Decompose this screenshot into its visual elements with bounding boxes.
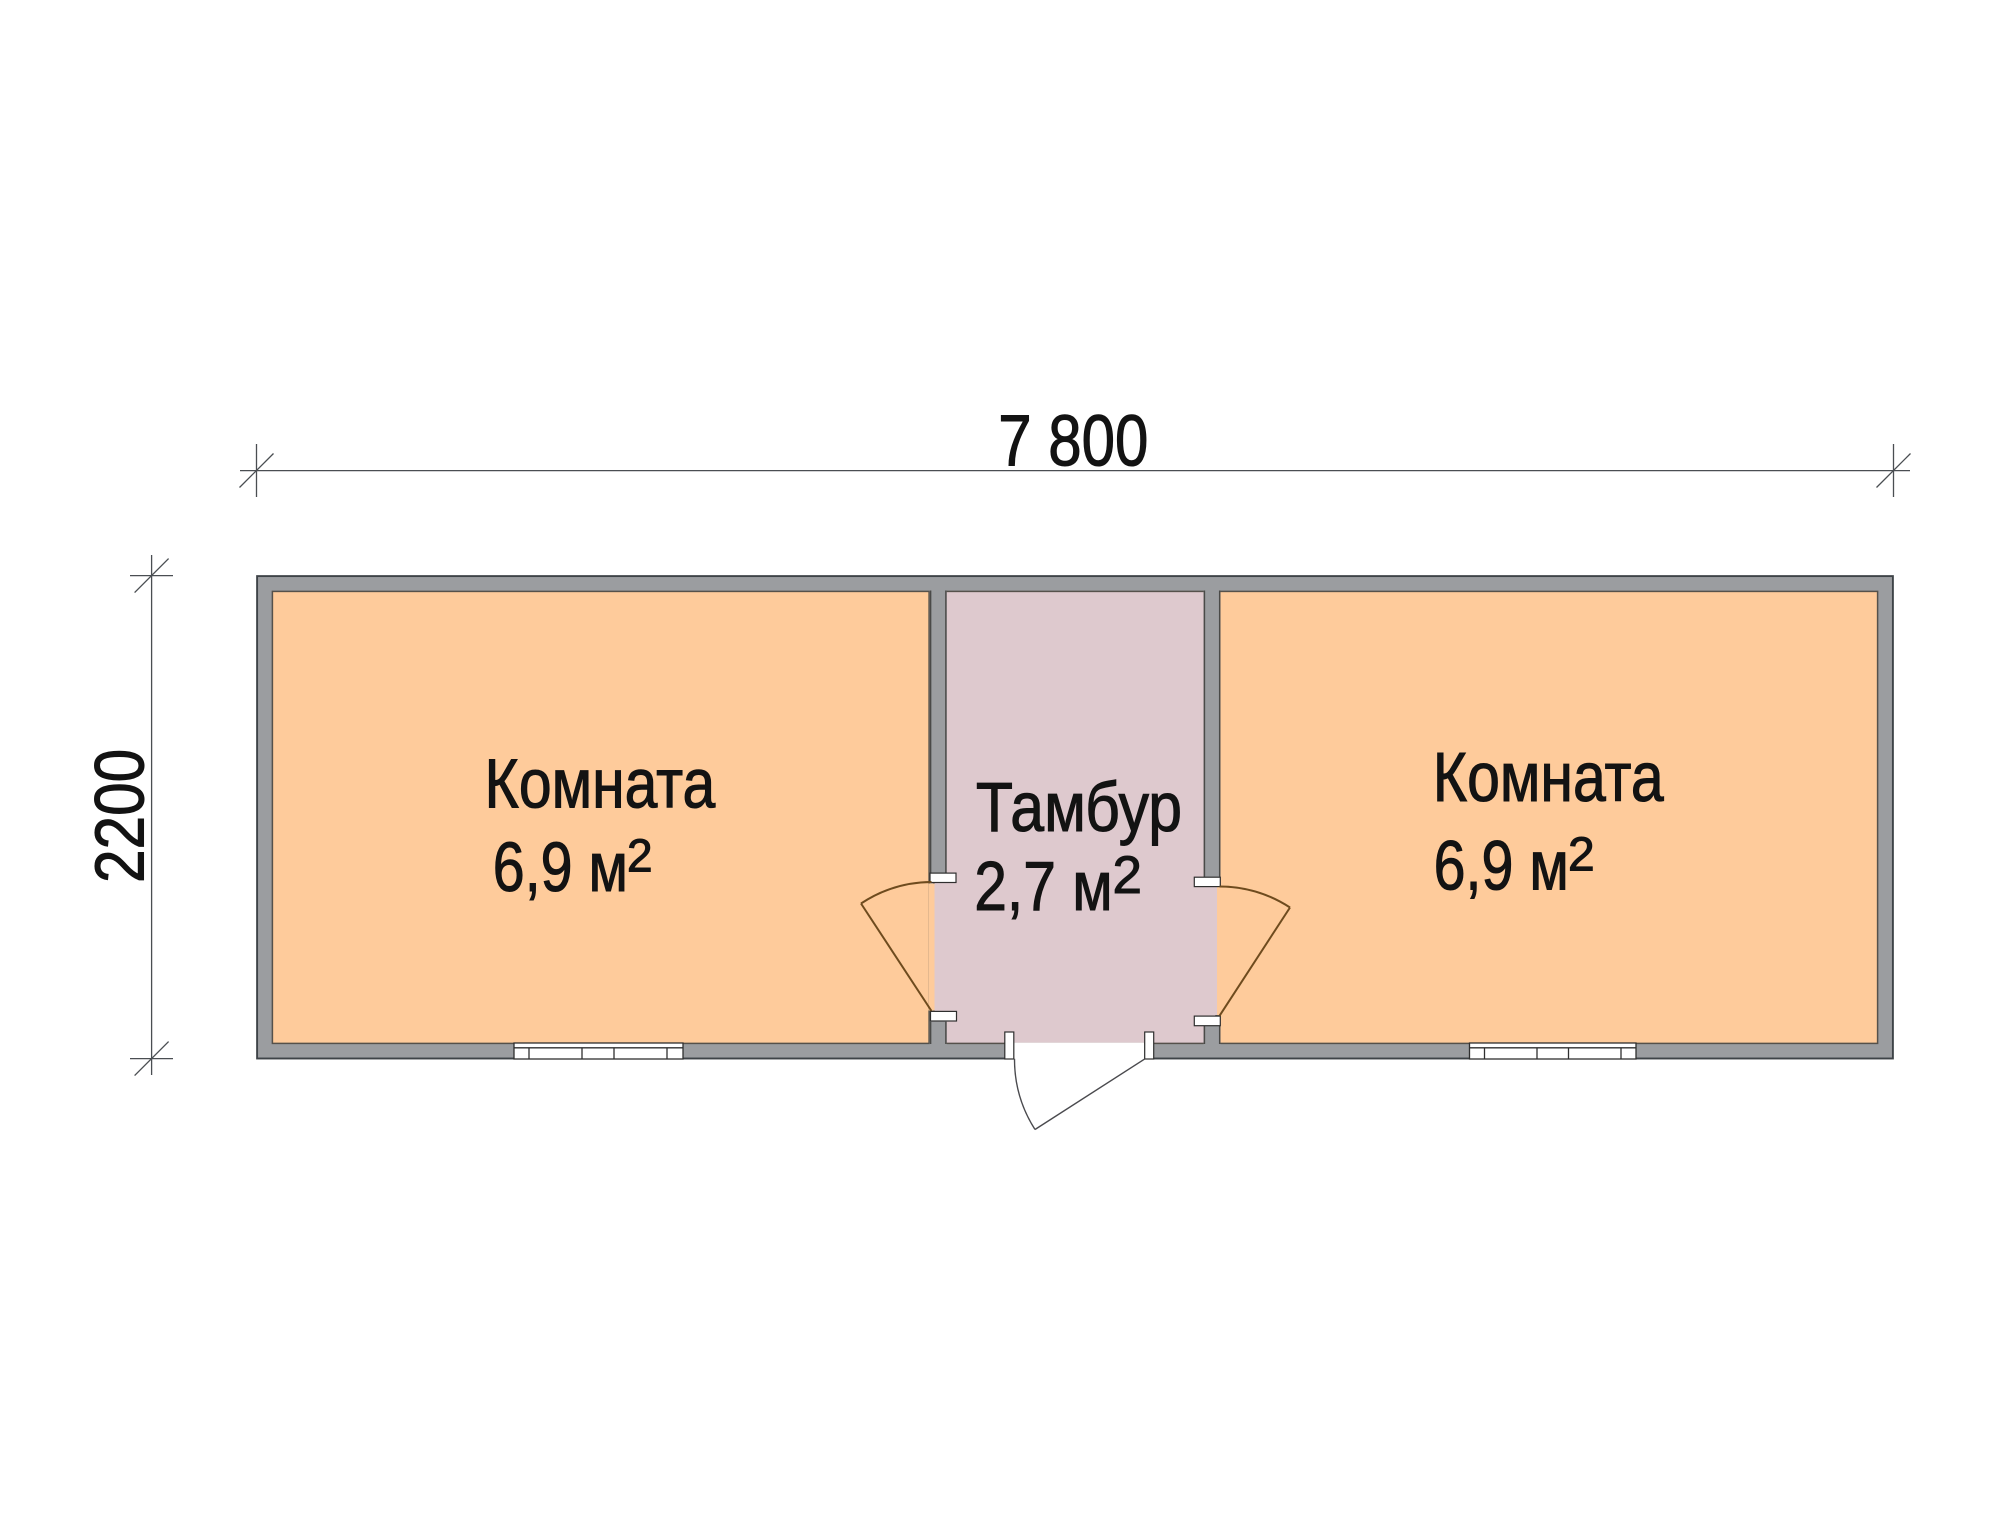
svg-text:Тамбур: Тамбур bbox=[976, 768, 1182, 846]
svg-text:2200: 2200 bbox=[80, 749, 158, 883]
svg-text:2: 2 bbox=[627, 829, 653, 881]
svg-text:2: 2 bbox=[1113, 846, 1142, 905]
svg-text:Комната: Комната bbox=[485, 744, 716, 823]
svg-text:6,9 м: 6,9 м bbox=[493, 828, 628, 907]
svg-text:2,7 м: 2,7 м bbox=[974, 846, 1112, 925]
svg-text:Комната: Комната bbox=[1433, 737, 1664, 816]
svg-text:2: 2 bbox=[1568, 829, 1595, 882]
svg-text:6,9 м: 6,9 м bbox=[1434, 826, 1569, 905]
svg-text:7 800: 7 800 bbox=[998, 401, 1148, 481]
